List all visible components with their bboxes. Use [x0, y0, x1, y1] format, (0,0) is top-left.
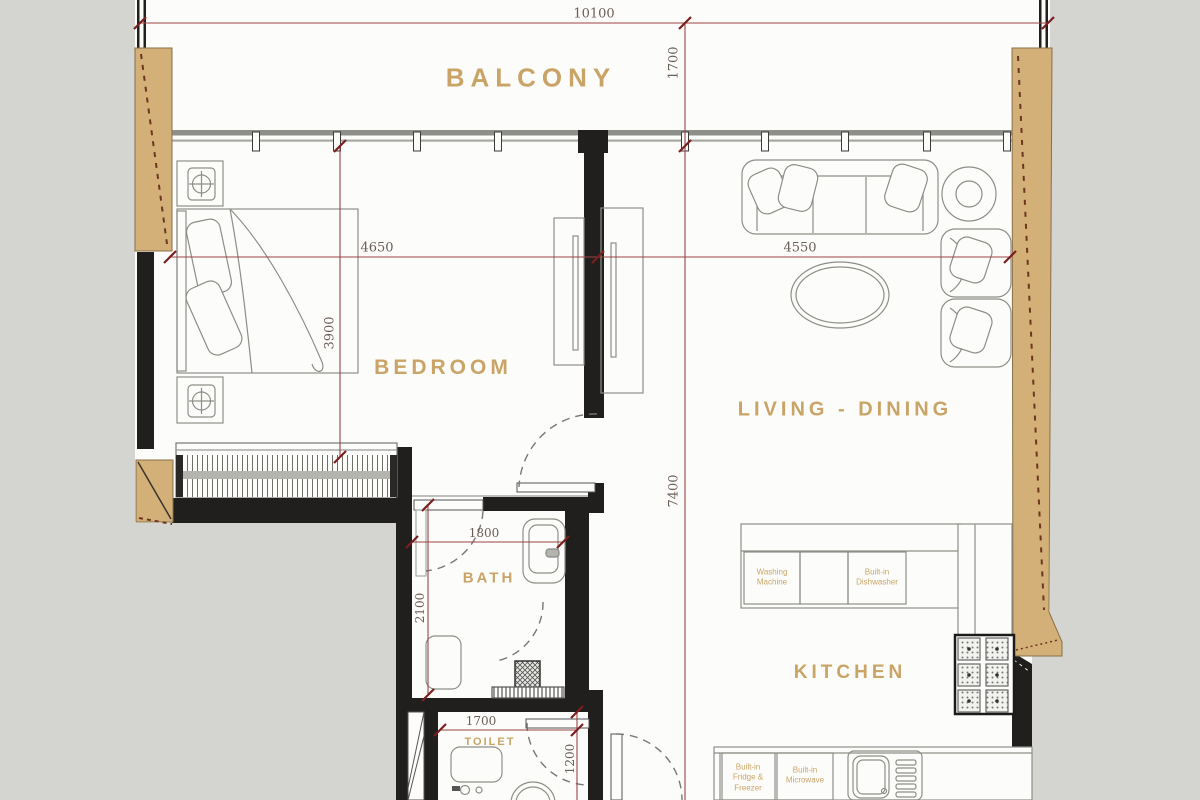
floor-plan-drawing — [0, 0, 1200, 800]
shower-drain — [515, 661, 540, 688]
dim-overall-width: 10100 — [573, 7, 614, 22]
floor-plan: BALCONY BEDROOM LIVING - DINING BATH TOI… — [0, 0, 1200, 800]
dim-bedroom-depth: 3900 — [323, 316, 338, 349]
coffee-table — [791, 262, 889, 328]
toilet-label: TOILET — [465, 736, 516, 748]
bath-sink — [523, 519, 565, 583]
stove — [955, 635, 1014, 714]
dim-bedroom-width: 4650 — [360, 241, 393, 256]
dishwasher-label: Built-in Dishwasher — [849, 568, 905, 589]
dim-toilet-width: 1700 — [466, 714, 497, 728]
washing-machine-label: Washing Machine — [746, 568, 798, 589]
living-dining-label: LIVING - DINING — [738, 399, 952, 422]
microwave-label: Built-in Microwave — [779, 766, 831, 787]
dim-toilet-depth: 1200 — [563, 744, 577, 775]
fridge-freezer-label: Built-in Fridge & Freezer — [726, 762, 770, 793]
service-shaft — [408, 712, 424, 800]
bath-label: BATH — [463, 570, 516, 587]
dim-unit-depth: 7400 — [667, 474, 682, 507]
shower-threshold-grill — [492, 687, 564, 698]
dim-bath-depth: 2100 — [413, 593, 427, 624]
dim-balcony-depth: 1700 — [667, 46, 682, 79]
armchair-2 — [941, 299, 1011, 367]
dim-bath-width: 1800 — [469, 526, 500, 540]
dim-living-width: 4550 — [783, 241, 816, 256]
sofa — [742, 160, 938, 234]
armchair-1 — [941, 229, 1011, 297]
round-side-table — [942, 167, 996, 221]
kitchen-label: KITCHEN — [794, 662, 906, 684]
balcony-label: BALCONY — [446, 63, 617, 94]
bedroom-label: BEDROOM — [374, 356, 512, 380]
wardrobe — [176, 443, 397, 497]
